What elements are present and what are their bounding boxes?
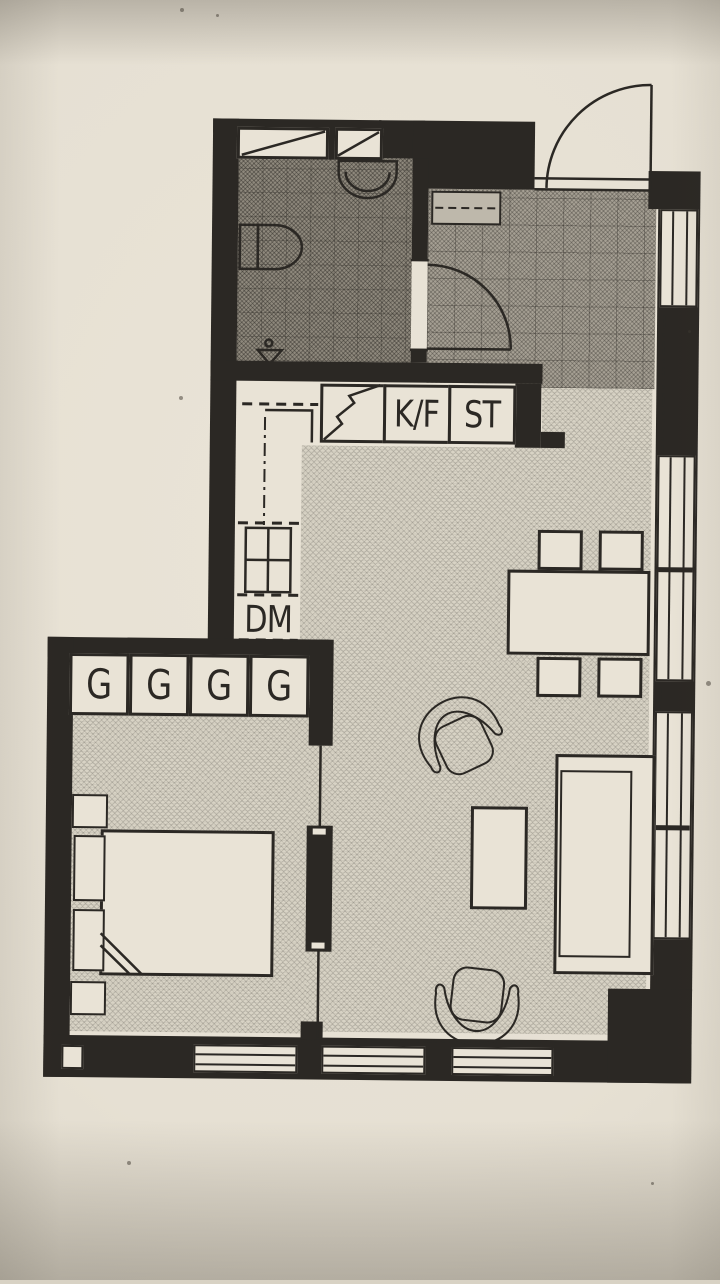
dining-chair [536,657,581,697]
dust-speck [651,1182,654,1185]
wall [648,171,700,210]
dining-chair [598,530,643,570]
window [193,1044,297,1073]
vent-shaft [335,128,383,161]
dining-chair [597,657,642,697]
wardrobe-label: G [266,662,293,710]
wardrobe-cabinet: G [249,655,310,718]
wall [515,384,542,448]
fridge-freezer-label: K/F [394,392,440,435]
cleaning-cupboard-label: ST [464,393,501,436]
dishwasher-area: DM [236,599,300,640]
wardrobe-label: G [206,661,233,709]
floor-plan: K/F ST DM G G G G [0,0,720,1284]
bedside-shelf [72,794,108,828]
wall [208,118,240,644]
dust-speck [688,330,691,333]
coffee-table [470,806,528,910]
floor-plan-photo: K/F ST DM G G G G [0,0,720,1280]
sliding-door-handle [311,943,324,949]
dishwasher-label: DM [244,597,292,640]
fridge-freezer-cabinet: K/F [383,384,452,444]
sliding-door [305,825,332,951]
wall [412,159,429,261]
bathroom-floor [237,157,413,363]
dining-chair [537,530,582,570]
wall-notch [61,1045,83,1069]
hall-closet [431,191,501,226]
front-door-arc [546,84,651,189]
window [655,455,695,681]
wardrobe-cabinet: G [69,653,130,716]
window [659,209,698,307]
bedside-shelf [70,981,106,1015]
window [451,1047,553,1076]
wall [607,989,692,1084]
wall [210,360,542,383]
wall [309,639,334,745]
vent-shaft [237,127,329,160]
wardrobe-label: G [146,661,173,709]
dust-speck [706,681,711,686]
wall [412,121,535,190]
window [653,711,693,939]
dust-speck [180,8,184,12]
wall [541,432,565,448]
bedside-shelf [72,909,105,971]
sofa-seat [558,770,632,958]
wardrobe-label: G [86,660,113,708]
wall [411,349,427,363]
dust-speck [127,1161,131,1165]
cleaning-cupboard: ST [448,385,517,445]
wall [301,1021,323,1039]
wardrobe-cabinet: G [129,654,190,717]
wardrobe-cabinet: G [189,654,250,717]
bedside-shelf [73,835,106,901]
sliding-door-handle [313,829,326,835]
dust-speck [216,14,219,17]
dining-table [507,570,651,656]
bed [99,829,275,977]
window [321,1046,425,1075]
dust-speck [179,396,183,400]
stove-cabinet [320,384,387,444]
